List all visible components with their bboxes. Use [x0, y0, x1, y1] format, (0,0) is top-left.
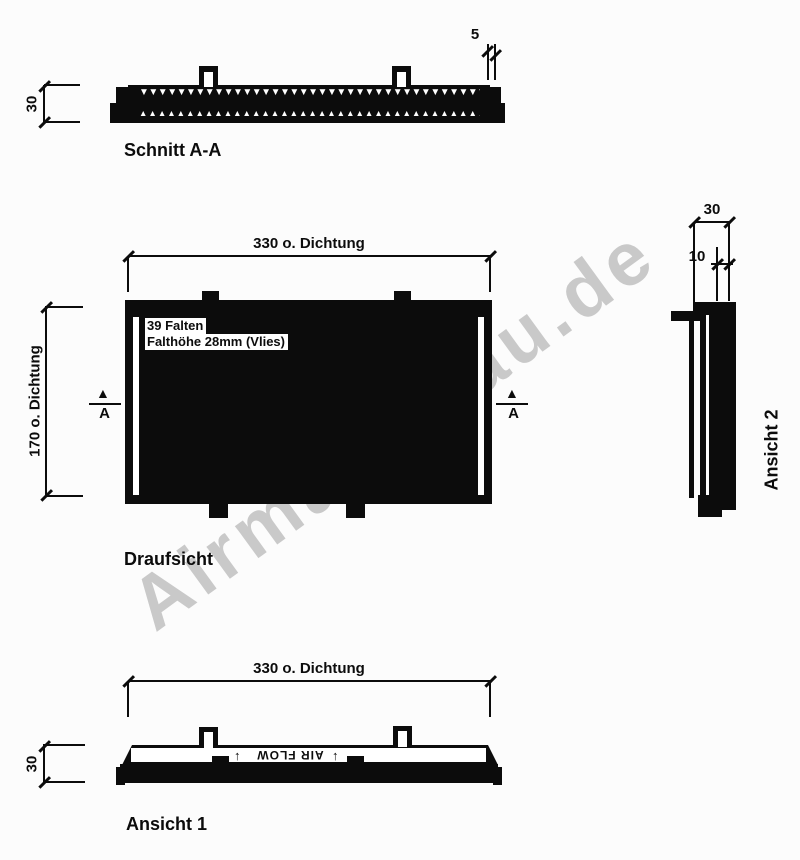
- schnitt-pleats-top: ▼▼▼▼▼▼▼▼▼▼▼▼▼▼▼▼▼▼▼▼▼▼▼▼▼▼▼▼▼▼▼▼▼▼▼▼▼▼: [139, 86, 480, 99]
- ansicht1-tab-right-slot: [398, 731, 407, 747]
- ansicht2-foot: [698, 495, 722, 517]
- ansicht2-body-bar: [709, 302, 736, 510]
- air-flow-arrow-left: ↑: [234, 749, 241, 763]
- draufsicht-dim170-line: [45, 307, 47, 497]
- ansicht2-dim10-value: 10: [684, 248, 710, 265]
- schnitt-dim30-value: 30: [24, 96, 41, 113]
- ansicht1-dim30-line: [43, 745, 45, 783]
- schnitt-dim30-ext-bottom: [44, 121, 80, 123]
- ansicht1-dim330-ext-left: [127, 683, 129, 717]
- draufsicht-dim330-line: [128, 255, 490, 257]
- draufsicht-slot-left: [133, 317, 139, 495]
- schnitt-tab-right-slot: [397, 72, 406, 87]
- draufsicht-dim330-ext-right: [489, 258, 491, 292]
- draufsicht-tab-bottom-left: [209, 503, 228, 518]
- draufsicht-dim170-ext-top: [45, 306, 83, 308]
- schnitt-title: Schnitt A-A: [124, 140, 221, 161]
- air-flow-arrow-right: ↑: [332, 749, 339, 763]
- ansicht2-frame-line-outer: [689, 315, 694, 498]
- ansicht1-title: Ansicht 1: [126, 814, 207, 835]
- technical-drawing-page: Airmaticbau.de 30 5 ▼▼▼▼▼▼▼▼▼▼▼▼▼▼▼▼▼▼▼▼…: [0, 0, 800, 860]
- draufsicht-dim170-value: 170 o. Dichtung: [27, 345, 44, 457]
- pleat-note: 39 Falten Falthöhe 28mm (Vlies): [145, 318, 288, 350]
- draufsicht-dim330-value: 330 o. Dichtung: [128, 235, 490, 252]
- ansicht2-frame-line-inner: [700, 315, 706, 498]
- pleat-note-line2: Falthöhe 28mm (Vlies): [145, 334, 288, 350]
- ansicht1-dim330-ext-right: [489, 683, 491, 717]
- draufsicht-tab-top-right: [394, 291, 411, 301]
- ansicht1-frame-bar: [120, 764, 498, 783]
- section-marker-left-triangle: ▲: [96, 386, 110, 400]
- schnitt-pleats-bottom: ▲▲▲▲▲▲▲▲▲▲▲▲▲▲▲▲▲▲▲▲▲▲▲▲▲▲▲▲▲▲▲▲▲▲▲▲▲▲: [139, 107, 480, 119]
- schnitt-right-cap-step: [488, 103, 505, 123]
- ansicht2-dim30-value: 30: [693, 201, 731, 218]
- section-marker-right-triangle: ▲: [505, 386, 519, 400]
- draufsicht-title: Draufsicht: [124, 549, 213, 570]
- section-marker-left-letter: A: [96, 405, 113, 422]
- schnitt-dim5-line-b: [494, 44, 496, 80]
- ansicht2-dim10-ext-left: [716, 247, 718, 301]
- draufsicht-tab-top-left: [202, 291, 219, 301]
- draufsicht-slot-right: [478, 317, 484, 495]
- ansicht1-dim30-ext-bottom: [43, 781, 85, 783]
- ansicht1-tab-left-slot: [204, 732, 213, 748]
- ansicht2-dim30-line: [694, 221, 730, 223]
- schnitt-dim5-value: 5: [466, 26, 484, 43]
- draufsicht-dim330-ext-left: [127, 258, 129, 292]
- ansicht1-dim330-value: 330 o. Dichtung: [128, 660, 490, 677]
- ansicht1-dim30-ext-top: [43, 744, 85, 746]
- ansicht2-title: Ansicht 2: [762, 409, 783, 490]
- ansicht1-dim330-line: [128, 680, 490, 682]
- draufsicht-tab-bottom-right: [346, 503, 365, 518]
- schnitt-dim30-ext-top: [44, 84, 80, 86]
- schnitt-dim30-line: [43, 85, 45, 123]
- section-marker-right-letter: A: [505, 405, 522, 422]
- ansicht1-dim30-value: 30: [24, 756, 41, 773]
- air-flow-label: AIR FLOW: [246, 748, 334, 762]
- pleat-note-line1: 39 Falten: [145, 318, 206, 334]
- schnitt-tab-left-slot: [204, 72, 213, 87]
- draufsicht-dim170-ext-bottom: [45, 495, 83, 497]
- schnitt-left-cap-step: [110, 103, 130, 123]
